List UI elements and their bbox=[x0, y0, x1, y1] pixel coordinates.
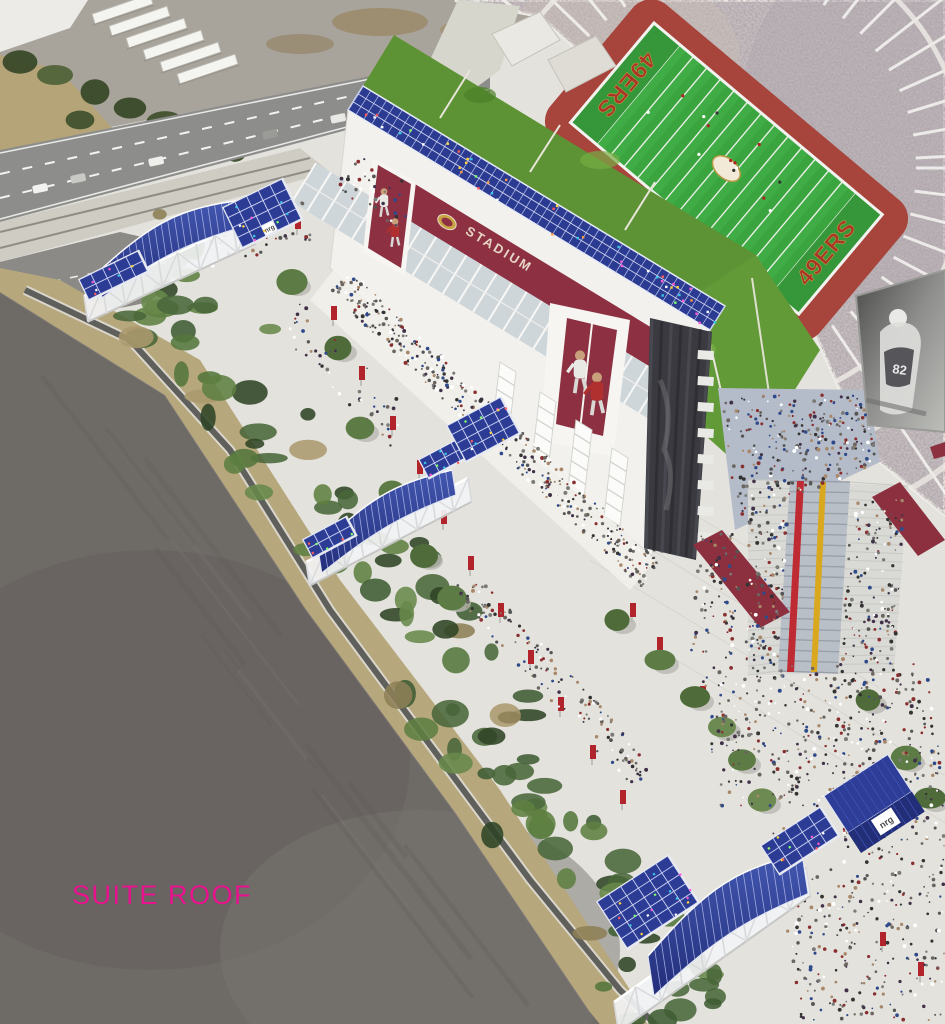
tree bbox=[708, 717, 736, 737]
tree bbox=[245, 439, 264, 449]
red-banner bbox=[498, 603, 504, 617]
red-banner bbox=[468, 556, 474, 570]
red-banner bbox=[528, 650, 534, 664]
tree bbox=[300, 408, 315, 420]
red-banner bbox=[657, 637, 663, 651]
tree bbox=[3, 50, 38, 73]
tree bbox=[81, 79, 110, 104]
tree bbox=[37, 65, 73, 85]
tree bbox=[704, 998, 722, 1009]
tree bbox=[399, 601, 414, 627]
tree bbox=[245, 484, 273, 500]
tree bbox=[360, 578, 391, 601]
tree bbox=[531, 809, 547, 823]
tree bbox=[239, 423, 276, 440]
tree bbox=[505, 763, 534, 780]
tree bbox=[66, 111, 95, 130]
jersey-number: 82 bbox=[891, 361, 907, 378]
tree bbox=[498, 711, 521, 723]
tree bbox=[346, 417, 375, 440]
tree bbox=[572, 926, 607, 941]
tree bbox=[224, 455, 245, 474]
tree bbox=[557, 868, 576, 889]
tree bbox=[174, 361, 189, 386]
tree bbox=[232, 380, 268, 405]
tree bbox=[511, 800, 535, 817]
tree bbox=[442, 647, 470, 673]
aerial-rendering-stage: 49ERS 49ERS STADIUM bbox=[0, 0, 945, 1024]
red-banner bbox=[918, 962, 924, 976]
tree bbox=[405, 630, 435, 643]
red-banner bbox=[620, 790, 626, 804]
tree bbox=[580, 822, 607, 840]
tree bbox=[527, 778, 562, 794]
red-banner bbox=[880, 932, 886, 946]
tree bbox=[113, 311, 146, 322]
tree bbox=[314, 484, 332, 505]
tree bbox=[605, 849, 642, 874]
tree bbox=[484, 643, 498, 660]
tree bbox=[856, 689, 881, 711]
tree bbox=[680, 686, 710, 708]
tree bbox=[153, 209, 167, 220]
tree bbox=[645, 650, 676, 671]
tree bbox=[563, 811, 578, 831]
tree bbox=[201, 404, 216, 431]
tree bbox=[538, 837, 574, 861]
tree bbox=[171, 334, 200, 350]
tree bbox=[384, 681, 412, 709]
tree bbox=[193, 297, 218, 314]
tree bbox=[481, 822, 503, 848]
red-banner bbox=[390, 416, 396, 430]
tree bbox=[410, 544, 438, 568]
red-banner bbox=[331, 306, 337, 320]
tree bbox=[276, 269, 307, 295]
photo-banner: 82 bbox=[856, 270, 945, 432]
tree bbox=[338, 490, 358, 510]
tree bbox=[604, 609, 629, 631]
tree bbox=[439, 752, 473, 773]
suite-roof-label: SUITE ROOF bbox=[72, 880, 252, 911]
tree bbox=[432, 620, 458, 639]
tree bbox=[119, 326, 154, 348]
tree bbox=[157, 295, 194, 314]
tree bbox=[324, 336, 351, 361]
tree bbox=[437, 586, 466, 611]
tree bbox=[259, 324, 281, 334]
red-banner bbox=[630, 603, 636, 617]
tree bbox=[748, 788, 776, 811]
aerial-rendering: 49ERS 49ERS STADIUM bbox=[0, 0, 945, 1024]
tree bbox=[289, 440, 327, 460]
tree bbox=[478, 728, 506, 745]
tree bbox=[513, 689, 544, 702]
tree bbox=[202, 375, 236, 401]
red-banner bbox=[359, 366, 365, 380]
tree bbox=[404, 717, 438, 740]
tree bbox=[618, 957, 636, 972]
red-banner bbox=[590, 745, 596, 759]
tree bbox=[375, 554, 402, 568]
tree bbox=[114, 98, 147, 119]
tree bbox=[728, 749, 756, 770]
tree bbox=[595, 981, 612, 991]
red-banner bbox=[558, 697, 564, 711]
tree bbox=[432, 700, 469, 728]
